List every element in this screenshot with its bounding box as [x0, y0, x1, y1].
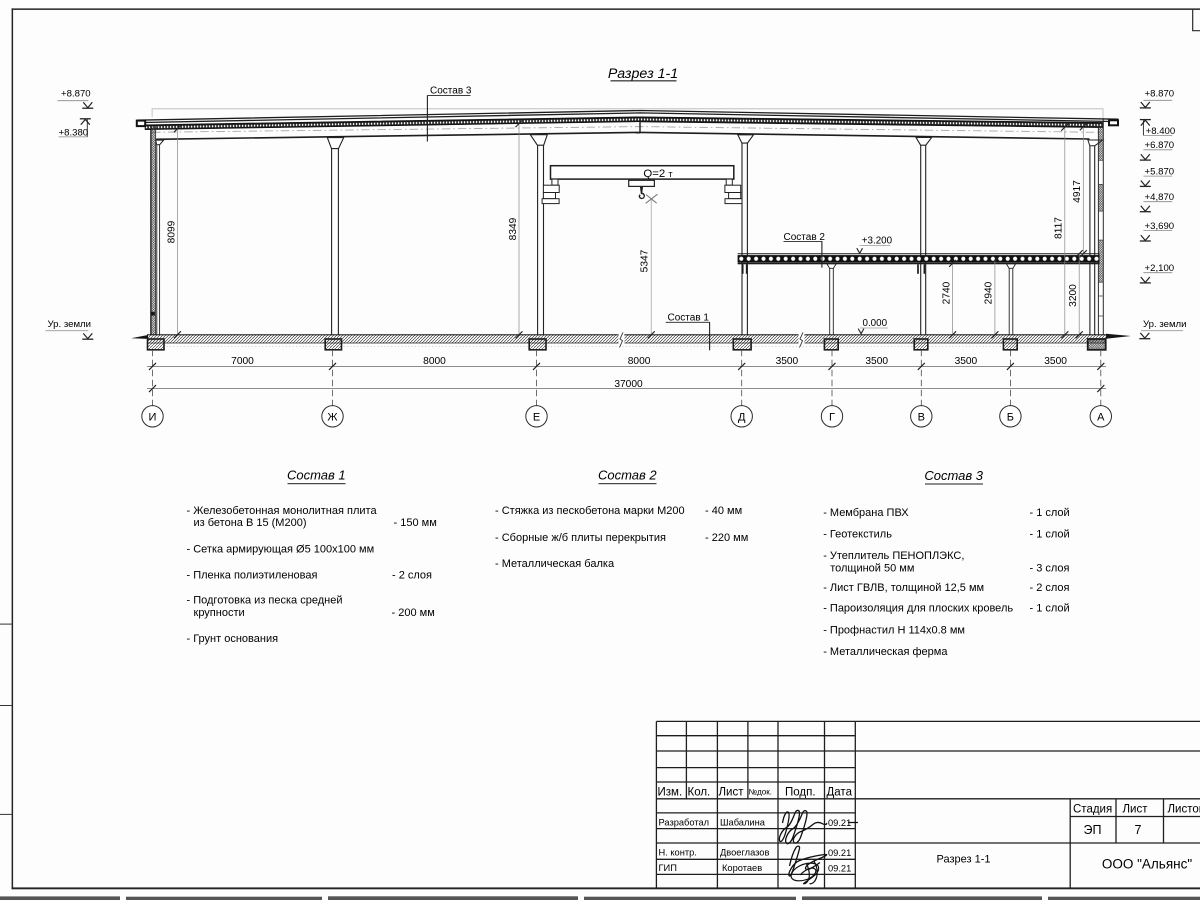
svg-text:- Металлическая балка: - Металлическая балка: [495, 558, 615, 570]
svg-text:- Пленка полиэтиленовая: - Пленка полиэтиленовая: [187, 569, 318, 581]
svg-text:Кол.: Кол.: [688, 787, 711, 799]
svg-text:Лист: Лист: [719, 787, 745, 799]
svg-text:Н. контр.: Н. контр.: [659, 847, 697, 857]
svg-text:5347: 5347: [640, 249, 651, 272]
svg-text:- 1 слой: - 1 слой: [1030, 603, 1070, 615]
svg-text:- Металлическая ферма: - Металлическая ферма: [823, 646, 948, 658]
svg-text:Дата: Дата: [827, 787, 853, 799]
svg-text:+2,100: +2,100: [1145, 263, 1175, 274]
svg-text:8000: 8000: [628, 356, 651, 367]
svg-text:2740: 2740: [941, 281, 952, 304]
svg-text:+3,690: +3,690: [1145, 221, 1175, 232]
svg-text:крупности: крупности: [194, 607, 245, 619]
svg-text:Состав 1: Состав 1: [668, 312, 710, 323]
svg-text:Стадия: Стадия: [1073, 804, 1112, 816]
svg-text:Листов: Листов: [1168, 804, 1200, 816]
svg-text:ЭП: ЭП: [1084, 823, 1102, 837]
svg-text:- 2 слоя: - 2 слоя: [1030, 582, 1070, 594]
svg-text:4917: 4917: [1072, 180, 1083, 203]
svg-text:Д: Д: [738, 411, 746, 423]
svg-text:- 2 слоя: - 2 слоя: [392, 569, 432, 581]
svg-text:- Лист ГВЛВ, толщиной 12,5 мм: - Лист ГВЛВ, толщиной 12,5 мм: [823, 582, 984, 594]
svg-text:0.000: 0.000: [863, 318, 888, 329]
svg-text:+8.870: +8.870: [61, 88, 91, 99]
svg-text:Состав 3: Состав 3: [924, 468, 983, 483]
svg-text:Состав 3: Состав 3: [430, 86, 472, 97]
svg-text:Ур. земли: Ур. земли: [48, 319, 92, 330]
svg-text:8099: 8099: [167, 220, 178, 243]
svg-text:Изм.: Изм.: [658, 787, 683, 799]
svg-text:3200: 3200: [1068, 284, 1079, 307]
svg-text:3500: 3500: [776, 356, 799, 367]
svg-text:Разрез 1-1: Разрез 1-1: [936, 854, 990, 866]
svg-text:- Геотекстиль: - Геотекстиль: [823, 528, 892, 540]
svg-text:толщиной 50 мм: толщиной 50 мм: [830, 562, 914, 574]
svg-text:09.21: 09.21: [828, 848, 851, 858]
svg-text:Разработал: Разработал: [659, 817, 710, 827]
svg-text:ООО "Альянс": ООО "Альянс": [1102, 857, 1192, 872]
svg-text:В: В: [918, 411, 925, 423]
svg-text:И: И: [149, 411, 157, 423]
svg-text:+3.200: +3.200: [862, 236, 893, 247]
svg-text:- 1 слой: - 1 слой: [1030, 507, 1070, 519]
svg-text:- 40 мм: - 40 мм: [705, 505, 742, 517]
svg-text:+8.870: +8.870: [1145, 88, 1175, 99]
svg-text:Ур. земли: Ур. земли: [1143, 319, 1187, 330]
svg-text:Е: Е: [533, 411, 540, 423]
svg-text:8117: 8117: [1054, 217, 1065, 239]
svg-text:Состав 2: Состав 2: [598, 468, 657, 483]
svg-text:- 1 слой: - 1 слой: [1030, 528, 1070, 540]
svg-text:2940: 2940: [984, 281, 995, 304]
svg-text:- Подготовка из песка средней: - Подготовка из песка средней: [187, 594, 343, 606]
svg-text:- Грунт основания: - Грунт основания: [187, 633, 279, 645]
svg-text:Ж: Ж: [327, 411, 337, 423]
svg-text:Г: Г: [829, 411, 835, 423]
svg-text:из бетона В 15 (М200): из бетона В 15 (М200): [194, 517, 307, 529]
svg-text:Шабалина: Шабалина: [720, 817, 766, 827]
svg-text:- Утеплитель ПЕНОПЛЭКС,: - Утеплитель ПЕНОПЛЭКС,: [823, 550, 964, 562]
svg-text:7: 7: [1135, 823, 1142, 837]
svg-text:- Пароизоляция для плоских кро: - Пароизоляция для плоских кровель: [823, 603, 1013, 615]
svg-text:- Мембрана ПВХ: - Мембрана ПВХ: [823, 507, 909, 519]
svg-text:- Железобетонная монолитная п: - Железобетонная монолитная плита: [187, 505, 378, 517]
svg-text:№док.: №док.: [749, 788, 772, 797]
svg-text:Подп.: Подп.: [785, 787, 816, 799]
svg-text:- 220 мм: - 220 мм: [705, 532, 748, 544]
svg-text:- Профнастил Н 114х0.8 мм: - Профнастил Н 114х0.8 мм: [823, 625, 965, 637]
svg-text:ГИП: ГИП: [659, 863, 677, 873]
svg-text:8000: 8000: [423, 356, 446, 367]
svg-text:+4,870: +4,870: [1145, 192, 1175, 203]
svg-text:37000: 37000: [614, 379, 643, 390]
svg-text:Коротаев: Коротаев: [722, 863, 762, 873]
svg-text:3500: 3500: [1044, 356, 1067, 367]
svg-text:+6.870: +6.870: [1145, 140, 1175, 151]
svg-text:8349: 8349: [508, 217, 519, 240]
svg-text:3500: 3500: [865, 356, 888, 367]
svg-text:Двоеглазов: Двоеглазов: [720, 847, 769, 857]
svg-text:09.21: 09.21: [828, 818, 851, 828]
svg-text:Состав 1: Состав 1: [287, 468, 346, 483]
svg-text:- Стяжка из пескобетона марки: - Стяжка из пескобетона марки М200: [495, 505, 685, 517]
svg-text:Лист: Лист: [1123, 804, 1149, 816]
svg-text:3500: 3500: [955, 356, 978, 367]
svg-text:+5.870: +5.870: [1145, 166, 1175, 177]
svg-text:Б: Б: [1007, 411, 1014, 423]
svg-text:- 150 мм: - 150 мм: [394, 517, 437, 529]
svg-text:Разрез 1-1: Разрез 1-1: [608, 66, 678, 82]
svg-text:7000: 7000: [231, 356, 254, 367]
svg-text:- Сетка армирующая Ø5 100х100: - Сетка армирующая Ø5 100х100 мм: [187, 543, 375, 555]
svg-text:- 200 мм: - 200 мм: [392, 607, 435, 619]
svg-text:А: А: [1097, 411, 1105, 423]
svg-text:Q=2 т: Q=2 т: [643, 168, 673, 180]
svg-text:09.21: 09.21: [828, 864, 851, 874]
svg-text:- 3 слоя: - 3 слоя: [1030, 562, 1070, 574]
svg-text:- Сборные ж/б плиты перекрытия: - Сборные ж/б плиты перекрытия: [495, 532, 666, 544]
